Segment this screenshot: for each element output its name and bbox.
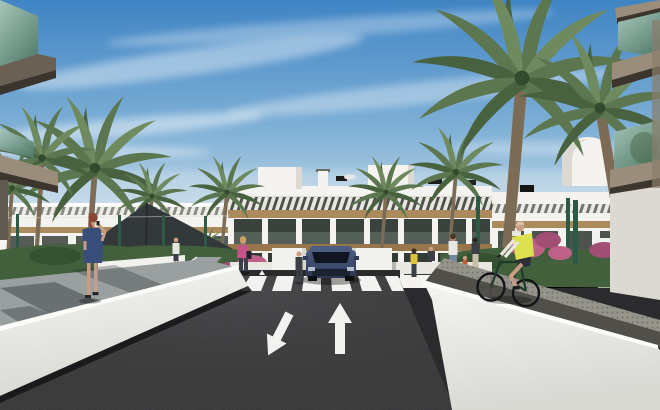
architectural-rendering xyxy=(0,0,660,410)
phone xyxy=(97,221,100,226)
handbag xyxy=(247,251,252,259)
render-canvas xyxy=(0,0,660,410)
car-suv xyxy=(301,246,361,285)
